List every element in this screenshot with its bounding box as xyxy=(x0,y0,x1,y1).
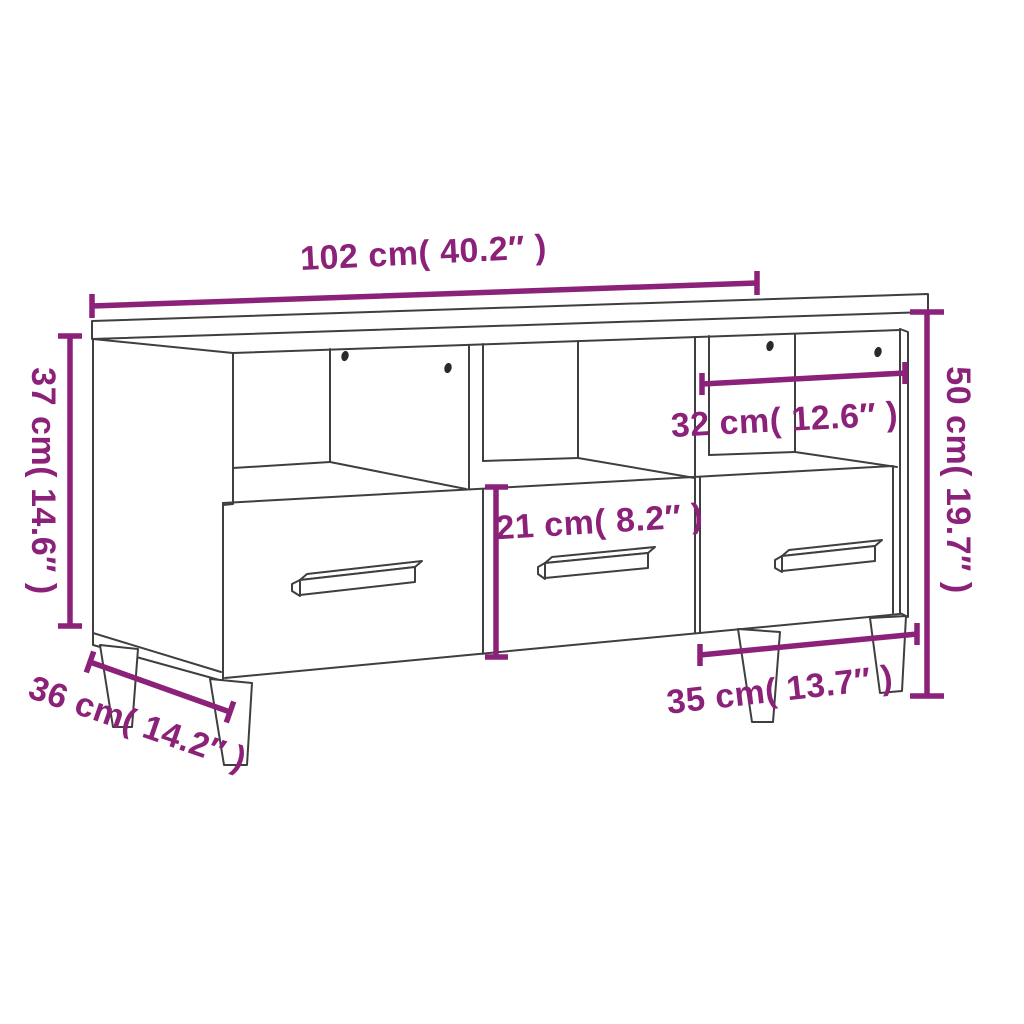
screw-dot xyxy=(340,350,350,362)
compartment-3-floor-back-edge xyxy=(709,452,795,455)
cabinet-side-panel xyxy=(93,339,233,681)
compartment-3-floor-front-edge xyxy=(795,452,897,467)
drawer-handle-3 xyxy=(775,540,882,572)
compartment-2-floor-front-edge xyxy=(578,458,695,478)
dimension-total-height: 50 cm( 19.7″ ) xyxy=(910,312,977,696)
handle-end-cap xyxy=(292,580,300,596)
screw-dot xyxy=(443,362,453,374)
dimension-label-side-height: 37 cm( 14.6″ ) xyxy=(24,367,62,594)
diagram-canvas: 102 cm( 40.2″ ) 37 cm( 14.6″ ) 50 cm( 19… xyxy=(0,0,1024,1024)
dimension-label-drawer-width: 35 cm( 13.7″ ) xyxy=(665,658,895,721)
dimension-line-shelf-opening-width xyxy=(702,362,905,395)
drawer-handle-1 xyxy=(292,561,422,596)
compartment-divider-1 xyxy=(469,344,483,489)
compartment-2-floor-back-edge xyxy=(483,458,578,461)
screw-dot xyxy=(765,340,775,352)
compartment-row-top-edge xyxy=(233,330,900,353)
compartment-1 xyxy=(233,349,466,489)
drawer-top-edge xyxy=(223,466,893,503)
screw-dot xyxy=(873,346,883,358)
dimension-drawer-width: 35 cm( 13.7″ ) xyxy=(665,623,917,722)
handle-end-cap xyxy=(775,556,782,572)
handle-end-cap xyxy=(538,563,545,579)
compartment-1-floor-back-edge xyxy=(233,462,330,468)
drawer-handle-2 xyxy=(538,547,655,579)
product-dimension-diagram: 102 cm( 40.2″ ) 37 cm( 14.6″ ) 50 cm( 19… xyxy=(0,0,1024,1024)
compartment-1-floor-front-edge xyxy=(330,462,466,489)
dimension-shelf-opening-width: 32 cm( 12.6″ ) xyxy=(670,362,905,445)
dimension-side-height: 37 cm( 14.6″ ) xyxy=(24,336,82,626)
compartment-2 xyxy=(483,341,695,478)
dimension-label-drawer-front-height: 21 cm( 8.2″ ) xyxy=(494,497,704,548)
dimension-label-shelf-opening-width: 32 cm( 12.6″ ) xyxy=(670,395,899,445)
dimension-label-width: 102 cm( 40.2″ ) xyxy=(299,228,547,278)
dimension-label-total-height: 50 cm( 19.7″ ) xyxy=(939,366,977,593)
